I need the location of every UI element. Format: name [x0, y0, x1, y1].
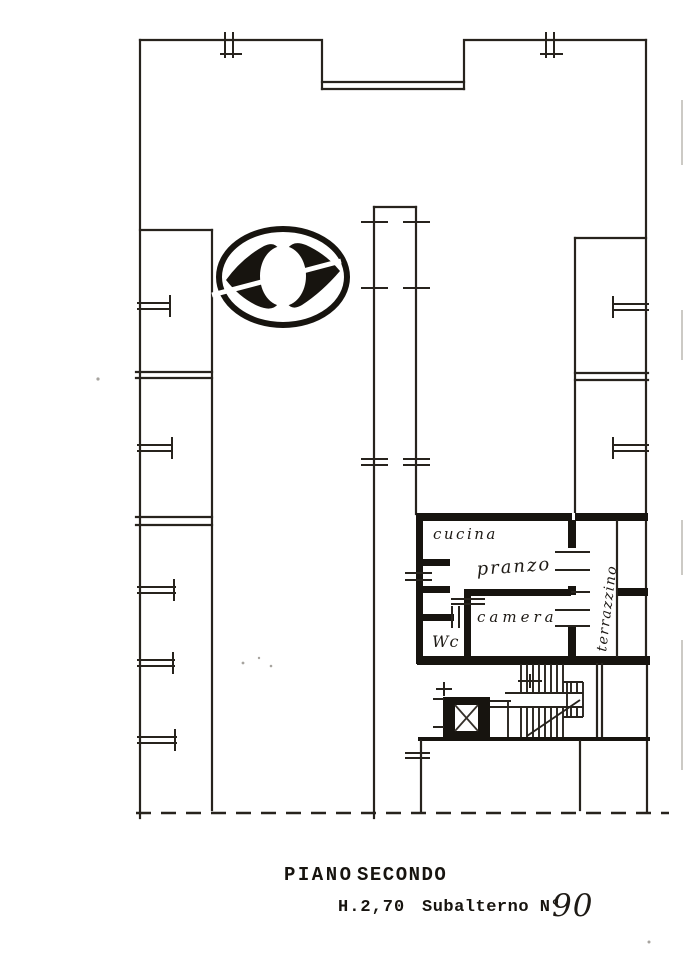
room-label-cucina: cucina — [433, 525, 498, 543]
cadastral-office-stamp-icon — [212, 229, 347, 325]
floor-plan-page: cucina pranzo camera Wc terrazzino — [0, 0, 688, 962]
caption-subalterno-label: Subalterno N° — [422, 898, 561, 917]
floor-plan-drawing: cucina pranzo camera Wc terrazzino — [0, 0, 688, 962]
room-labels: cucina pranzo camera Wc terrazzino — [432, 525, 621, 652]
caption-height: H.2,70 — [338, 898, 405, 917]
elevator-shaft-icon — [434, 683, 490, 739]
staircase-icon — [505, 664, 602, 737]
room-label-wc: Wc — [432, 632, 459, 651]
room-label-pranzo: pranzo — [476, 554, 552, 580]
right-balcony-strip — [575, 238, 648, 513]
scan-artifacts — [96, 100, 688, 944]
building-outline — [140, 40, 647, 818]
left-balcony-strip — [136, 230, 212, 810]
caption-floor-word2: SECONDO — [357, 864, 447, 886]
central-partition-wall — [362, 207, 429, 818]
top-window-ticks — [221, 33, 562, 57]
caption: PIANO SECONDO H.2,70 Subalterno N° 90 — [284, 864, 593, 924]
caption-floor-word1: PIANO — [284, 864, 354, 886]
caption-subalterno-number: 90 — [552, 888, 593, 924]
lower-block — [406, 737, 650, 812]
room-label-camera: camera — [477, 608, 558, 626]
